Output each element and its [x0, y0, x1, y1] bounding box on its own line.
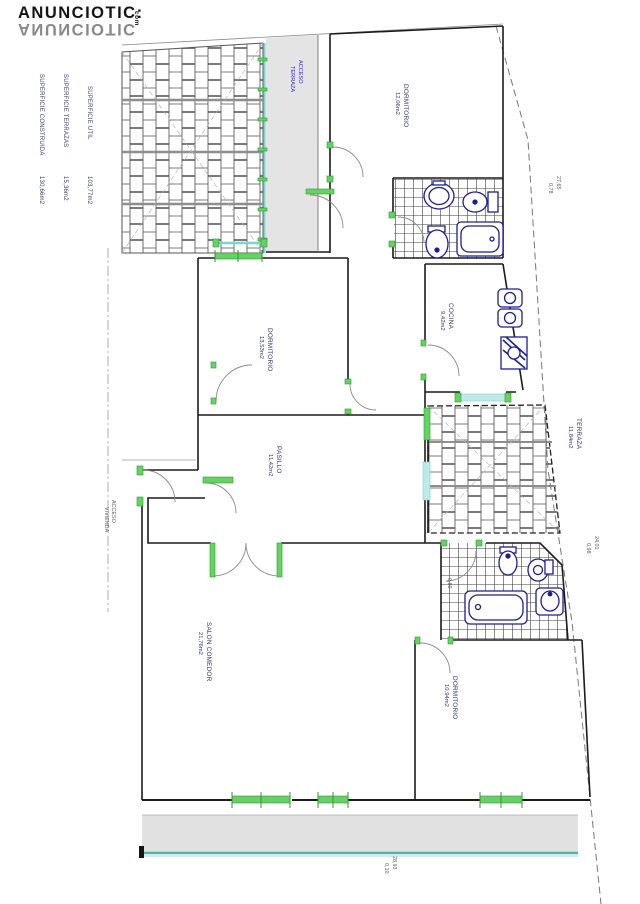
legend-value-2: 15,36m2	[62, 176, 68, 201]
legend-value-1: 130,66m2	[38, 176, 44, 205]
dim-bottom: 28,93	[391, 856, 397, 870]
dim-right-low-2: 0,98	[585, 543, 591, 554]
terrace-hatch-right	[428, 405, 560, 533]
area-label-salon: 21,76m2	[197, 632, 203, 655]
double-door-leaf	[210, 543, 215, 577]
room-label-acceso-2: TERRAZA	[289, 66, 295, 92]
bathtub	[457, 222, 503, 256]
room-label-dormitorio-bottom: DORMITORIO	[451, 676, 458, 719]
washer	[501, 337, 527, 369]
bidet	[463, 192, 498, 212]
dim-right-top-2: 0,78	[547, 183, 553, 194]
floorplan-page: ANUNCIOTIC:com ANUNCIOTIC	[0, 0, 640, 904]
bathtub-2	[465, 591, 527, 624]
area-label-cocina: 9,42m2	[439, 311, 445, 331]
room-label-entrada-2: VIVIENDA	[103, 507, 109, 533]
room-label-acceso: ACCESO	[297, 60, 303, 84]
area-label-terraza: 11,84m2	[567, 426, 573, 449]
double-door-leaf	[277, 543, 282, 577]
terrace-hatch-top	[122, 43, 265, 253]
toilet	[426, 226, 448, 258]
kitchen-terrace-window	[455, 393, 511, 402]
room-label-dormitorio-mid: DORMITORIO	[266, 328, 273, 371]
terrace-slider-glazing	[423, 462, 430, 500]
area-label-pasillo: 11,42m2	[267, 454, 273, 477]
dim-right-low: 24,01	[593, 536, 599, 550]
floorplan-drawing: SUPERFICIE CONSTRUIDA SUPERFICIE TERRAZA…	[0, 0, 640, 904]
dim-bottom-2: 0,10	[383, 863, 389, 874]
legend: SUPERFICIE CONSTRUIDA SUPERFICIE TERRAZA…	[38, 74, 92, 205]
area-label-dormitorio-bottom: 10,94m2	[443, 684, 449, 707]
legend-value-3: 103,77m2	[86, 176, 92, 205]
area-label-dormitorio-mid: 13,53m2	[258, 336, 264, 359]
room-label-entrada: ACCESO	[110, 500, 116, 523]
area-label-dormitorio-top: 12,06m2	[394, 92, 400, 115]
dim-right-top: 27,65	[555, 176, 561, 190]
room-label-terraza: TERRAZA	[575, 418, 582, 450]
sink-2	[536, 588, 563, 615]
room-label-salon: SALON COMEDOR	[205, 622, 212, 682]
legend-label-3: SUPERFICIE UTIL	[86, 86, 92, 140]
balcony-strip	[139, 815, 578, 858]
legend-label-1: SUPERFICIE CONSTRUIDA	[38, 74, 44, 156]
legend-label-2: SUPERFICIE TERRAZAS	[62, 74, 68, 147]
room-label-cocina: COCINA	[447, 303, 454, 330]
room-label-dormitorio-top: DORMITORIO	[402, 84, 409, 127]
toilet-2	[499, 547, 517, 575]
room-label-pasillo: PASILLO	[275, 446, 282, 474]
dim-bath-door: 0,80	[446, 578, 452, 589]
